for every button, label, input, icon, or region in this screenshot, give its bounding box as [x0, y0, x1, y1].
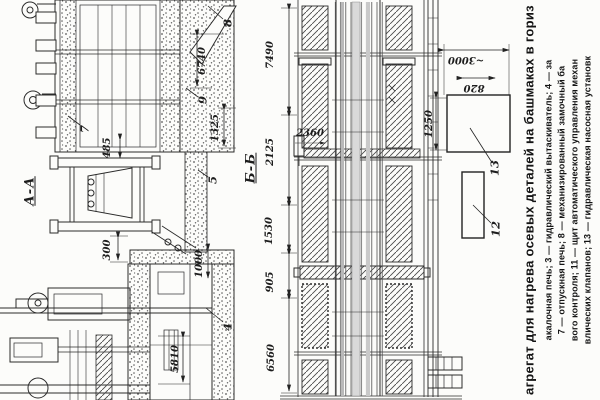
dim-3000: ~3000 [448, 54, 484, 64]
dim-820: 820 [464, 82, 485, 92]
section-label-aa: А-А [24, 176, 37, 206]
callout-8: 8 [222, 19, 234, 27]
dim-2125: 2125 [266, 138, 276, 166]
caption-line-4: влических клапанов; 13 — гидравлическая … [584, 56, 593, 344]
caption-line-3: вого контроля; 11 — щит автоматического … [571, 59, 580, 341]
dim-905: 905 [266, 272, 276, 293]
callout-13: 13 [489, 160, 501, 176]
dim-1530: 1530 [265, 217, 275, 245]
callout-4: 4 [222, 323, 234, 331]
callout-5: 5 [207, 176, 219, 184]
dim-485: 485 [103, 138, 113, 159]
dim-2360: 2360 [296, 129, 324, 139]
caption-title: агрегат для нагрева осевых деталей на ба… [523, 5, 536, 395]
section-label-bb: Б-Б [245, 153, 258, 184]
drawing-linework [0, 0, 600, 400]
callout-12: 12 [490, 221, 502, 237]
dim-7490: 7490 [266, 41, 276, 69]
dim-6560: 6560 [267, 344, 277, 372]
dim-1325: 1325 [211, 114, 221, 142]
callout-9: 9 [197, 96, 209, 104]
technical-drawing-page: А-А Б-Б 6740 485 1325 300 1000 5810 7490… [0, 0, 600, 400]
dim-1250: 1250 [425, 110, 435, 138]
dim-6740: 6740 [198, 47, 208, 75]
dim-1000: 1000 [195, 250, 205, 278]
caption-line-1: акалочная печь; 3 — гидравлический вытас… [545, 60, 554, 341]
callout-7: 7 [79, 125, 91, 133]
dim-5810: 5810 [171, 345, 181, 373]
dim-300: 300 [103, 240, 113, 261]
caption-line-2: 7 — отпускная печь; 8 — механизированный… [558, 66, 567, 335]
